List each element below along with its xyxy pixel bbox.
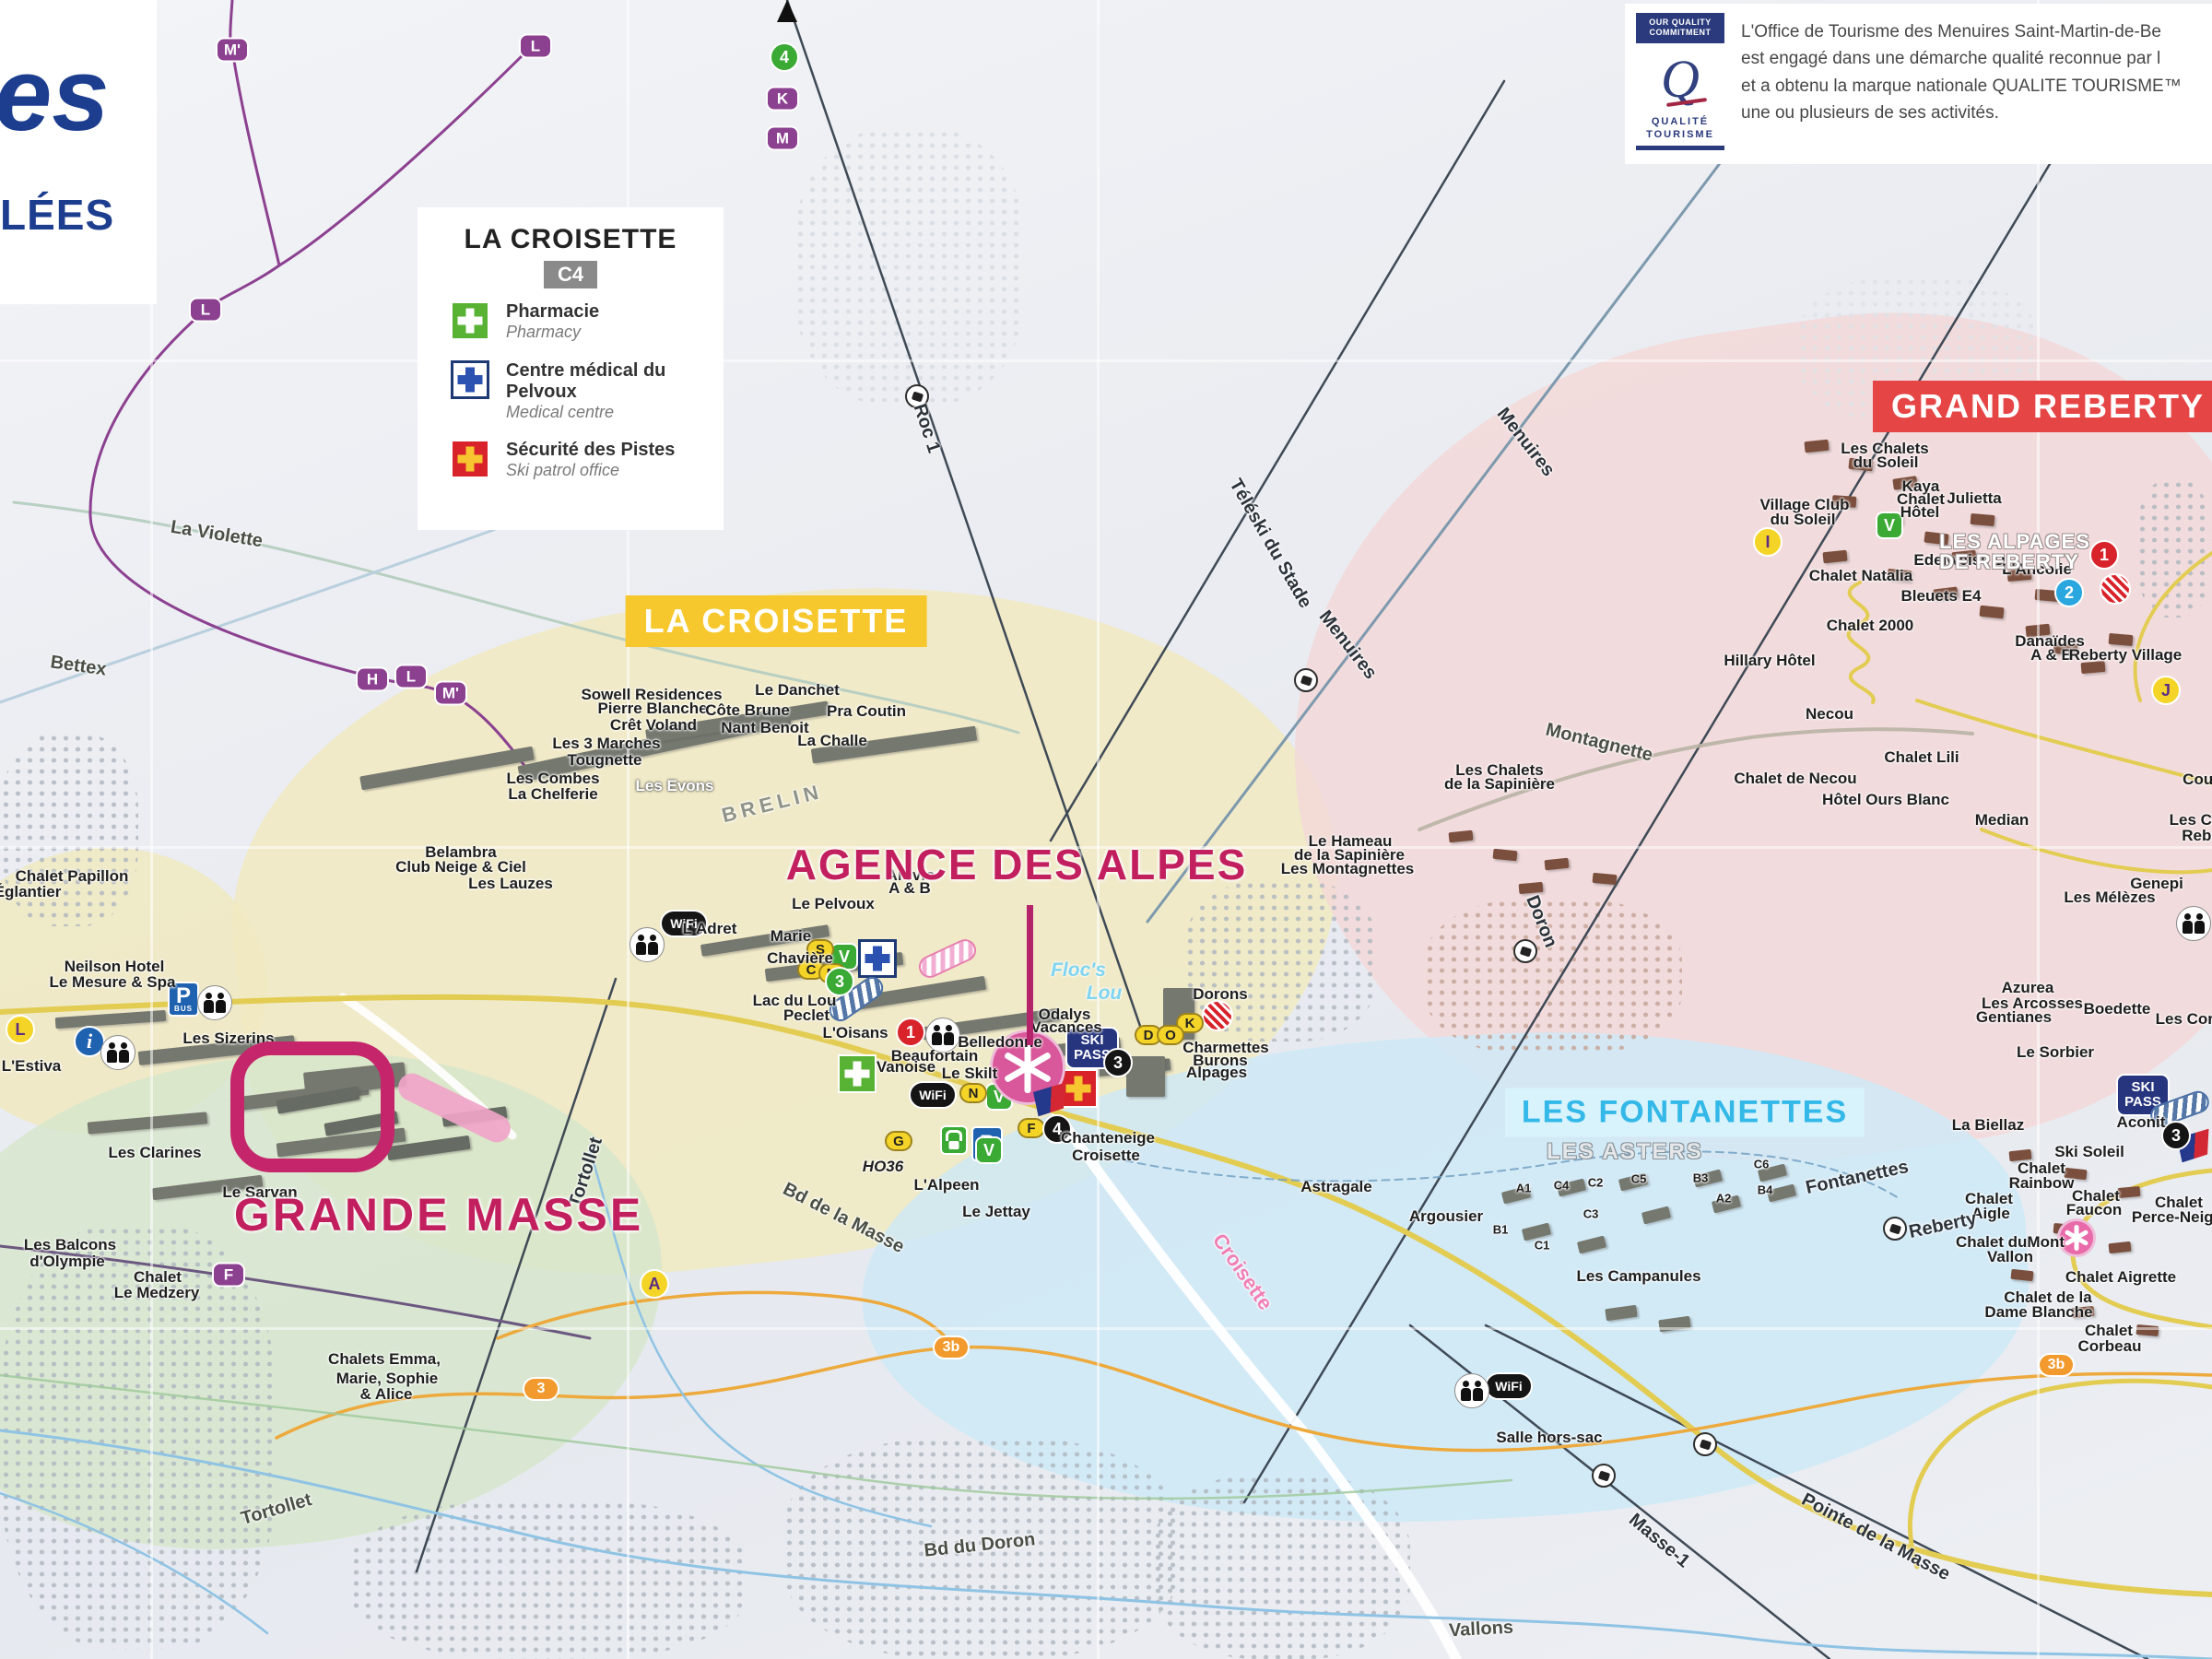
label-vallons: Vallons bbox=[1448, 1618, 1513, 1642]
label-du-soleil: du Soleil bbox=[1853, 453, 1919, 472]
label-c1: C1 bbox=[1535, 1239, 1550, 1253]
label-chanteneige: Chanteneige bbox=[1061, 1129, 1155, 1147]
quality-text-line: et a obtenu la marque nationale QUALITE … bbox=[1741, 73, 2182, 100]
lift-badge-m: M' bbox=[434, 681, 467, 706]
lift-badge-l: L bbox=[519, 34, 552, 59]
label-le-pelvoux: Le Pelvoux bbox=[792, 895, 875, 913]
label-rebe: Rebe bbox=[2182, 827, 2212, 845]
path-lift-menuires bbox=[1147, 155, 1726, 922]
path-road-reberty-3 bbox=[1982, 829, 2212, 872]
label-faucon: Faucon bbox=[2066, 1201, 2122, 1219]
label-chalet-lili: Chalet Lili bbox=[1884, 748, 1959, 767]
quality-text-line: une ou plusieurs de ses activités. bbox=[1741, 100, 2182, 126]
label-le-sorbier: Le Sorbier bbox=[2017, 1043, 2094, 1062]
gondola-icon-glyph bbox=[1883, 1217, 1907, 1241]
family-icon-glyph bbox=[100, 1035, 135, 1070]
ski-school-flag-icon-glyph bbox=[1032, 1083, 1070, 1117]
label-peclet: Peclet bbox=[783, 1006, 829, 1025]
legend-label-en: Pharmacy bbox=[506, 323, 690, 343]
label-glantier: Églantier bbox=[0, 883, 61, 901]
label-astragale: Astragale bbox=[1300, 1178, 1371, 1196]
label-les-3-marches: Les 3 Marches bbox=[552, 735, 660, 753]
legend-label-en: Medical centre bbox=[506, 403, 690, 423]
label-necou: Necou bbox=[1806, 705, 1853, 724]
label-perce-neige: Perce-Neige bbox=[2132, 1208, 2212, 1227]
path-lift-teleski-stade bbox=[1051, 81, 1504, 841]
legend-item-medical-centre: Centre médical du Pelvoux Medical centre bbox=[451, 360, 711, 423]
path-road-natalia-hairpin bbox=[1849, 582, 1874, 702]
map-lines-layer bbox=[0, 0, 2212, 1659]
lift-badge-1: 1 bbox=[2089, 540, 2119, 570]
label-hillary-h-tel: Hillary Hôtel bbox=[1724, 652, 1815, 670]
label-l-estiva: L'Estiva bbox=[2, 1057, 62, 1076]
lift-badge-k: K bbox=[766, 87, 799, 112]
label-de-la-sapini-re: de la Sapinière bbox=[1444, 775, 1555, 794]
label-du-soleil: du Soleil bbox=[1771, 511, 1836, 529]
label-boedette: Boedette bbox=[2084, 1000, 2151, 1018]
label-a1: A1 bbox=[1516, 1182, 1532, 1195]
resort-logo-panel: es LÉES bbox=[0, 0, 157, 304]
label-cr-t-voland: Crêt Voland bbox=[610, 716, 697, 735]
wifi-icon-glyph: WiFi bbox=[1485, 1372, 1533, 1400]
v-badge-icon-glyph: V bbox=[975, 1136, 1003, 1164]
wifi-icon-glyph: WiFi bbox=[909, 1081, 957, 1109]
lift-badge-g: G bbox=[885, 1131, 912, 1151]
family-icon-glyph bbox=[2176, 906, 2211, 941]
label-le-medzery: Le Medzery bbox=[114, 1284, 200, 1302]
ski-patrol-icon bbox=[451, 440, 489, 478]
legend-panel: LA CROISETTE C4 Pharmacie Pharmacy Centr… bbox=[418, 207, 724, 530]
label-salle-hors-sac: Salle hors-sac bbox=[1496, 1429, 1602, 1447]
label-h-tel: Hôtel bbox=[1900, 503, 1940, 522]
ski-resort-map: es LÉES LA CROISETTE C4 Pharmacie Pharma… bbox=[0, 0, 2212, 1659]
label-a-b: A & B bbox=[2030, 646, 2073, 665]
ski-school-flag-icon bbox=[1035, 1086, 1068, 1113]
label-pra-coutin: Pra Coutin bbox=[827, 702, 906, 721]
path-road-reberty-1 bbox=[1917, 700, 2212, 783]
quality-text: L'Office de Tourisme des Menuires Saint-… bbox=[1741, 13, 2182, 155]
resort-logo-text: es bbox=[0, 35, 110, 154]
label-ho36: HO36 bbox=[863, 1158, 903, 1176]
wifi-icon: WiFi bbox=[1485, 1372, 1533, 1400]
label-les-balcons: Les Balcons bbox=[24, 1236, 116, 1254]
lift-badge-j: J bbox=[2151, 676, 2181, 705]
direction-arrow-icon-glyph bbox=[777, 0, 797, 22]
medical-centre-cross-icon bbox=[858, 939, 897, 978]
building bbox=[2109, 633, 2134, 646]
grid-line-vertical bbox=[1097, 0, 1100, 1659]
gondola-icon-glyph bbox=[1294, 668, 1318, 692]
label-les-asters: LES ASTERS bbox=[1547, 1139, 1703, 1165]
legend-label-fr: Sécurité des Pistes bbox=[506, 440, 690, 461]
label-le-mesure-spa: Le Mesure & Spa bbox=[50, 973, 176, 992]
legend-item-pharmacy: Pharmacie Pharmacy bbox=[451, 301, 711, 344]
lift-badge-h: H bbox=[356, 667, 389, 692]
building bbox=[2010, 1269, 2033, 1281]
legend-item-ski-patrol: Sécurité des Pistes Ski patrol office bbox=[451, 440, 711, 482]
label-l-alpeen: L'Alpeen bbox=[913, 1176, 979, 1194]
label-corbeau: Corbeau bbox=[2078, 1337, 2142, 1356]
label-les-cory: Les Cory bbox=[2156, 1010, 2212, 1029]
family-icon bbox=[2176, 906, 2211, 941]
label-nant-benoit: Nant Benoit bbox=[721, 719, 808, 737]
label-chalets-emma: Chalets Emma, bbox=[328, 1350, 441, 1369]
agence-des-alpes-pointer-line bbox=[1027, 905, 1033, 1045]
legend-label-fr: Centre médical du Pelvoux bbox=[506, 360, 690, 403]
label-tougnette: Tougnette bbox=[568, 751, 642, 770]
family-icon-glyph bbox=[629, 927, 665, 962]
label-floc-s: Floc's bbox=[1051, 959, 1106, 982]
grid-line-horizontal bbox=[0, 359, 2212, 362]
locker-icon-glyph bbox=[940, 1125, 968, 1155]
meeting-point-icon bbox=[2100, 573, 2131, 605]
label-b1: B1 bbox=[1493, 1223, 1509, 1237]
gondola-icon-glyph bbox=[1693, 1432, 1717, 1456]
label-la-biellaz: La Biellaz bbox=[1952, 1116, 2024, 1135]
label-h-tel-ours-blanc: Hôtel Ours Blanc bbox=[1822, 791, 1949, 809]
grid-line-horizontal bbox=[0, 1327, 2212, 1330]
label-c6: C6 bbox=[1754, 1158, 1770, 1171]
area-title-grand-reberty: GRAND REBERTY bbox=[1873, 381, 2212, 432]
label-le-danchet: Le Danchet bbox=[755, 681, 840, 700]
lift-badge-3: 3 bbox=[2161, 1121, 2191, 1150]
lift-badge-l: L bbox=[394, 665, 428, 689]
building bbox=[1971, 513, 1995, 526]
lift-badge-4: 4 bbox=[770, 42, 799, 72]
quality-text-line: L'Office de Tourisme des Menuires Saint-… bbox=[1741, 18, 2182, 45]
building bbox=[1593, 873, 1618, 885]
label-croisette: Croisette bbox=[1072, 1147, 1140, 1165]
qualite-tourisme-wordmark: QUALITÉ TOURISME bbox=[1636, 115, 1724, 151]
grid-line-vertical bbox=[2037, 0, 2040, 1659]
pharmacy-cross-icon bbox=[838, 1054, 877, 1093]
label-ski-soleil: Ski Soleil bbox=[2054, 1143, 2124, 1161]
path-river-3 bbox=[0, 1493, 267, 1633]
label-les-montagnettes: Les Montagnettes bbox=[1281, 860, 1415, 878]
gondola-icon bbox=[1883, 1217, 1907, 1241]
pharmacy-icon bbox=[451, 301, 489, 340]
direction-arrow-icon bbox=[777, 0, 797, 22]
label-rainbow: Rainbow bbox=[2009, 1174, 2075, 1193]
label-b4: B4 bbox=[1758, 1183, 1773, 1197]
gondola-icon-glyph bbox=[1513, 939, 1537, 963]
quality-commitment-banner: OUR QUALITY COMMITMENT bbox=[1636, 13, 1724, 43]
grande-masse-highlight-box bbox=[230, 1041, 394, 1172]
label-chalet-natalia: Chalet Natalia bbox=[1809, 567, 1912, 585]
path-lift-tortollet bbox=[417, 979, 616, 1571]
legend-label-fr: Pharmacie bbox=[506, 301, 690, 323]
gondola-icon-glyph bbox=[1592, 1464, 1616, 1488]
label-d-olympie: d'Olympie bbox=[29, 1253, 105, 1271]
gondola-icon bbox=[1513, 939, 1537, 963]
building bbox=[2118, 1186, 2141, 1198]
qualite-tourisme-logo: OUR QUALITY COMMITMENT Q QUALITÉ TOURISM… bbox=[1636, 13, 1724, 155]
lift-badge-2: 2 bbox=[2054, 578, 2084, 607]
lift-badge-m: M' bbox=[216, 38, 249, 63]
medical-centre-icon bbox=[451, 360, 489, 399]
meeting-point-icon bbox=[1202, 1000, 1233, 1031]
label-chalet-2000: Chalet 2000 bbox=[1827, 617, 1914, 635]
lift-badge-o: O bbox=[1157, 1025, 1184, 1045]
family-icon-glyph bbox=[197, 985, 232, 1020]
area-title-grande-masse: GRANDE MASSE bbox=[234, 1188, 643, 1241]
label-lou: Lou bbox=[1087, 982, 1122, 1005]
meeting-point-icon-glyph bbox=[1202, 1000, 1233, 1031]
label-argousier: Argousier bbox=[1409, 1207, 1483, 1226]
family-icon bbox=[100, 1035, 135, 1070]
v-badge-icon: V bbox=[975, 1136, 1003, 1164]
area-title-agence-des-alpes: AGENCE DES ALPES bbox=[786, 840, 1248, 889]
label-l-oisans: L'Oisans bbox=[822, 1024, 888, 1042]
lift-badge-n: N bbox=[959, 1083, 987, 1103]
wifi-icon: WiFi bbox=[909, 1081, 957, 1109]
lift-badge-a: A bbox=[640, 1269, 669, 1299]
area-title-les-fontanettes: LES FONTANETTES bbox=[1505, 1088, 1865, 1137]
label-alice: & Alice bbox=[359, 1385, 412, 1404]
lift-badge-3b: 3b bbox=[2038, 1353, 2075, 1377]
locker-icon bbox=[940, 1125, 968, 1155]
lift-badge-l: L bbox=[6, 1015, 35, 1044]
label-le-jettay: Le Jettay bbox=[962, 1203, 1030, 1221]
label-les-clarines: Les Clarines bbox=[108, 1144, 201, 1162]
label-chalet-aigrette: Chalet Aigrette bbox=[2065, 1268, 2176, 1287]
label-les-lauzes: Les Lauzes bbox=[468, 875, 553, 893]
q-glyph: Q bbox=[1661, 48, 1700, 110]
gondola-icon bbox=[1294, 668, 1318, 692]
v-badge-icon-glyph: V bbox=[1876, 512, 1903, 539]
building bbox=[1979, 606, 2004, 619]
label-aconit: Aconit bbox=[2117, 1113, 2166, 1132]
label-chalet-de-necou: Chalet de Necou bbox=[1734, 770, 1856, 788]
lift-badge-f: F bbox=[1018, 1118, 1045, 1138]
label-l-adret: L'Adret bbox=[683, 920, 737, 938]
family-icon bbox=[1454, 1373, 1489, 1408]
label-bleuets-e4: Bleuets E4 bbox=[1901, 587, 1982, 606]
label-reberty-village: Reberty Village bbox=[2069, 646, 2183, 665]
legend-grid-ref: C4 bbox=[544, 261, 597, 288]
v-badge-icon: V bbox=[1876, 512, 1903, 539]
lift-badge-3: 3 bbox=[1103, 1048, 1133, 1077]
lift-badge-3: 3 bbox=[523, 1377, 559, 1401]
family-icon bbox=[629, 927, 665, 962]
lift-badge-i: I bbox=[1753, 527, 1783, 557]
label-cour: Cour bbox=[2183, 771, 2212, 789]
label-alpages: Alpages bbox=[1186, 1064, 1247, 1082]
label-vallon: Vallon bbox=[1987, 1248, 2033, 1266]
label-pierre-blanche: Pierre Blanche bbox=[597, 700, 707, 718]
path-road-right-lower bbox=[1911, 1381, 2212, 1567]
path-road-orange-a bbox=[498, 1292, 955, 1347]
lift-badge-l: L bbox=[189, 298, 222, 323]
quality-text-line: est engagé dans une démarche qualité rec… bbox=[1741, 45, 2182, 72]
label-aigle: Aigle bbox=[1971, 1205, 2010, 1223]
label-julietta: Julietta bbox=[1947, 489, 2002, 508]
label-c5: C5 bbox=[1631, 1172, 1647, 1186]
quality-tourism-panel: OUR QUALITY COMMITMENT Q QUALITÉ TOURISM… bbox=[1625, 4, 2212, 164]
family-icon bbox=[197, 985, 232, 1020]
label-gentianes: Gentianes bbox=[1976, 1008, 2052, 1027]
label-c2: C2 bbox=[1588, 1176, 1604, 1190]
label-c4: C4 bbox=[1554, 1179, 1570, 1193]
label-c3: C3 bbox=[1583, 1207, 1599, 1221]
lift-badge-m: M bbox=[766, 126, 799, 151]
label-le-skilt: Le Skilt bbox=[942, 1065, 997, 1083]
label-median: Median bbox=[1975, 811, 2030, 829]
label-c-te-brune: Côte Brune bbox=[705, 701, 790, 720]
pharmacy-cross-icon-glyph bbox=[838, 1054, 877, 1093]
label-vanoise: Vanoise bbox=[877, 1058, 935, 1077]
gondola-icon bbox=[1592, 1464, 1616, 1488]
family-icon-glyph bbox=[1454, 1373, 1489, 1408]
lift-badge-1: 1 bbox=[896, 1018, 925, 1047]
label-b3: B3 bbox=[1693, 1171, 1709, 1185]
gondola-icon bbox=[1693, 1432, 1717, 1456]
label-de-reberty: DE REBERTY bbox=[1939, 550, 2079, 574]
label-la-chelferie: La Chelferie bbox=[508, 785, 597, 804]
resort-logo-subtext: LÉES bbox=[0, 190, 114, 240]
label-les-evons: Les Evons bbox=[635, 777, 713, 795]
label-marie: Marie bbox=[771, 927, 811, 946]
label-vacances: Vacances bbox=[1030, 1018, 1102, 1037]
medical-centre-cross-icon-glyph bbox=[858, 939, 897, 978]
qualite-tourisme-glyph: Q bbox=[1636, 43, 1724, 115]
meeting-point-icon-glyph bbox=[2100, 573, 2131, 605]
label-les-m-l-zes: Les Mélèzes bbox=[2064, 888, 2155, 907]
lift-badge-f: F bbox=[212, 1263, 245, 1288]
label-a2: A2 bbox=[1716, 1192, 1732, 1206]
lift-badge-3b: 3b bbox=[933, 1335, 970, 1359]
building bbox=[2136, 1324, 2159, 1336]
label-les-campanules: Les Campanules bbox=[1576, 1267, 1700, 1286]
label-dorons: Dorons bbox=[1193, 985, 1248, 1004]
label-chavi-re: Chavière bbox=[767, 949, 833, 968]
area-title-la-croisette: LA CROISETTE bbox=[626, 595, 927, 647]
label-dame-blanche: Dame Blanche bbox=[1984, 1303, 2092, 1322]
label-club-neige-ciel: Club Neige & Ciel bbox=[395, 858, 526, 877]
legend-title: LA CROISETTE bbox=[430, 224, 711, 255]
label-la-challe: La Challe bbox=[797, 732, 867, 750]
legend-label-en: Ski patrol office bbox=[506, 461, 690, 481]
